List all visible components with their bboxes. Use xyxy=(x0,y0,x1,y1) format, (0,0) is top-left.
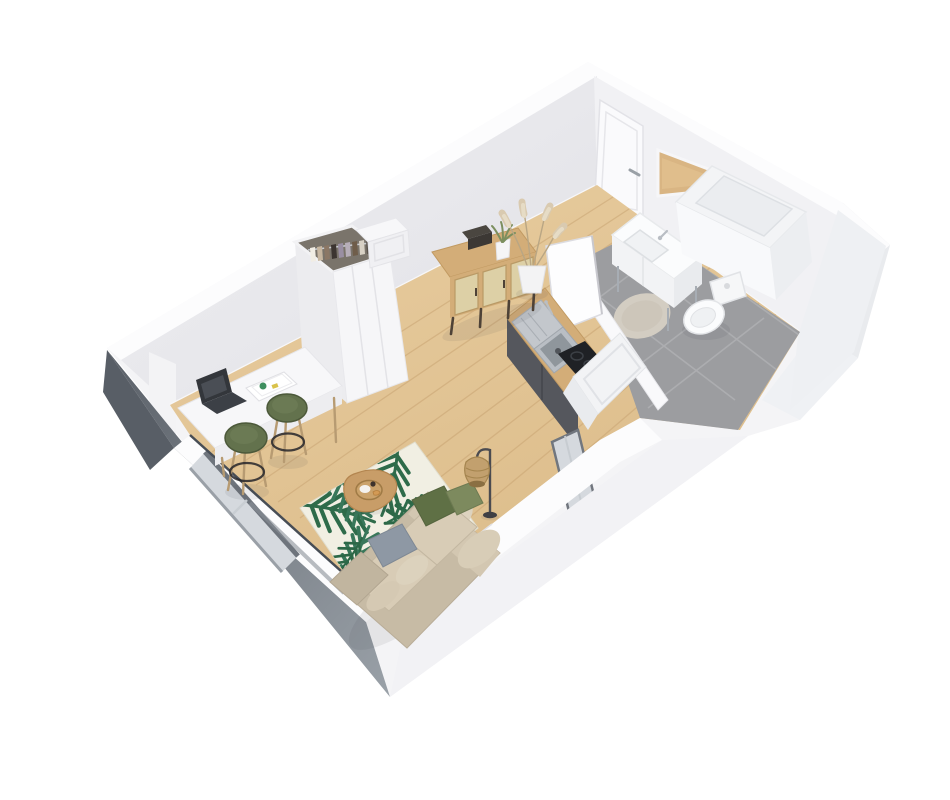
floorplan-canvas xyxy=(0,0,950,800)
pampas-pot xyxy=(518,266,546,293)
coffee-table xyxy=(344,470,397,515)
lamp-base xyxy=(483,512,497,518)
floorplan-stage xyxy=(0,0,950,800)
plate xyxy=(360,485,371,493)
croissant xyxy=(373,491,380,496)
cup xyxy=(370,481,375,486)
flush-button xyxy=(724,283,730,289)
